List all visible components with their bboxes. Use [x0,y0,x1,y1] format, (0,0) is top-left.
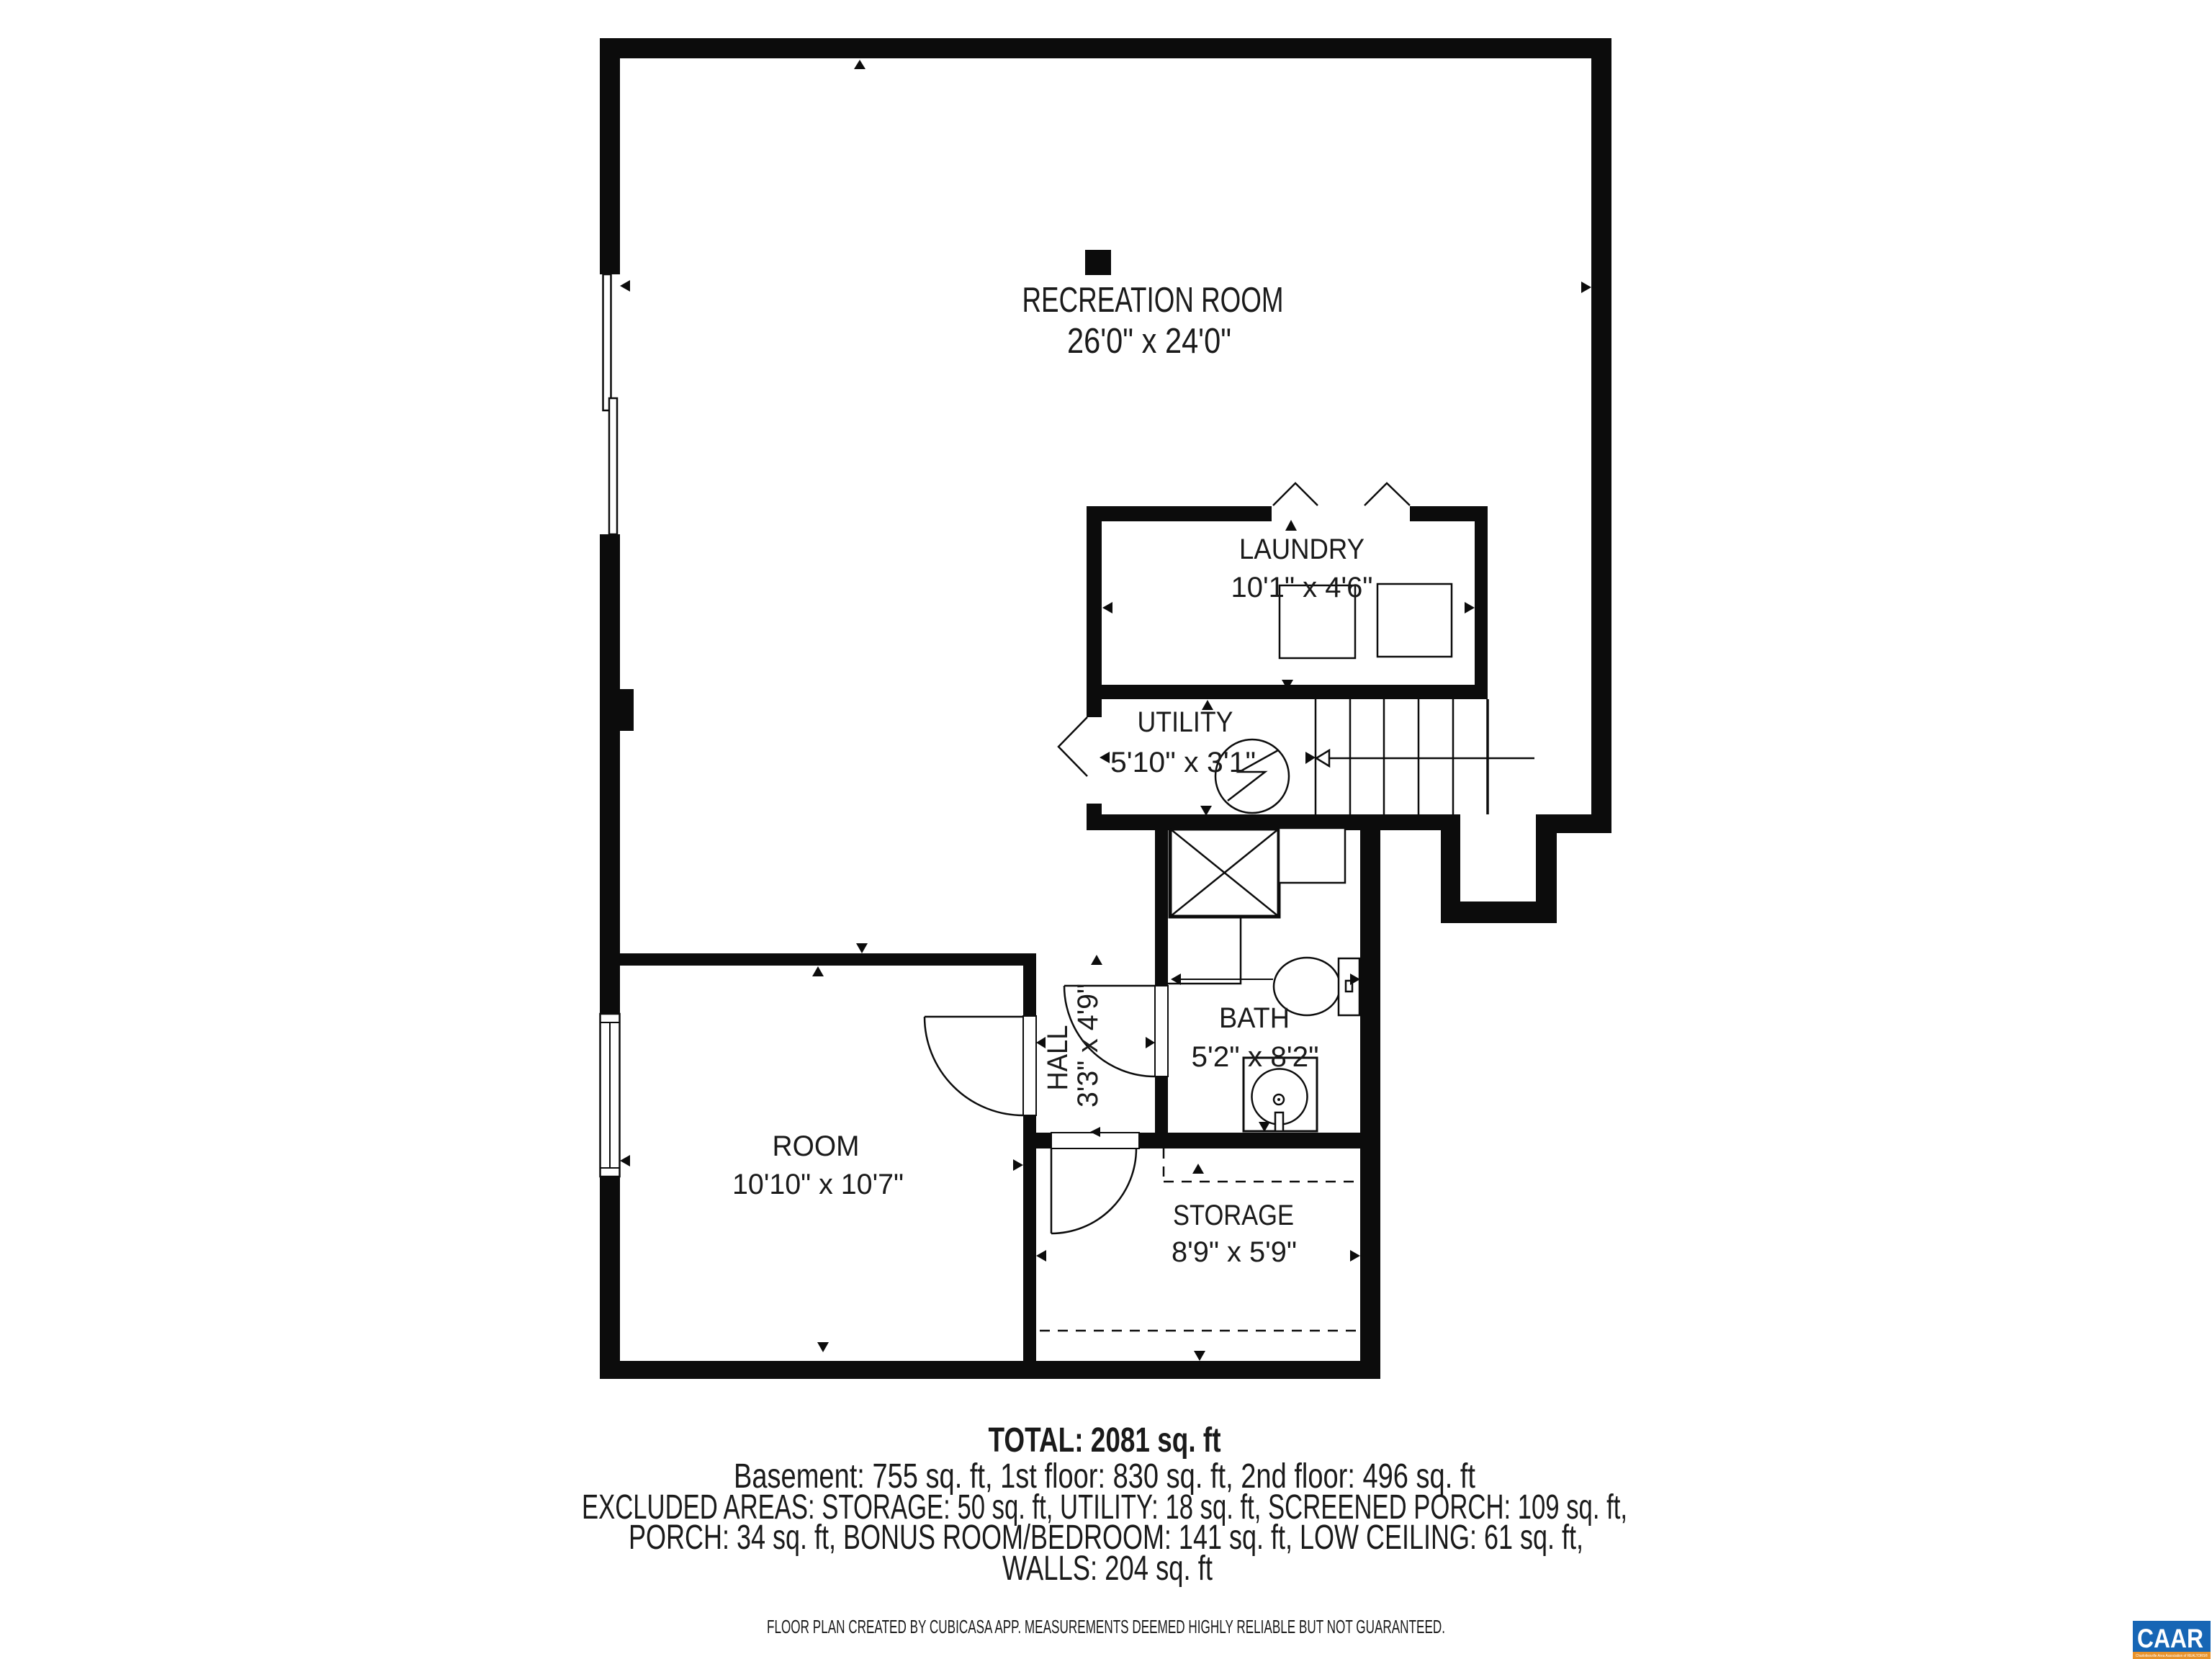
svg-text:HALL: HALL [1042,1025,1074,1091]
svg-text:8'9" x 5'9": 8'9" x 5'9" [1172,1236,1297,1268]
svg-text:WALLS: 204 sq. ft: WALLS: 204 sq. ft [1002,1550,1213,1588]
svg-text:LAUNDRY: LAUNDRY [1239,534,1364,565]
svg-text:Charlottesville Area Associati: Charlottesville Area Association of REAL… [2136,1653,2208,1658]
svg-text:BATH: BATH [1219,1002,1290,1034]
svg-text:UTILITY: UTILITY [1138,706,1233,738]
svg-text:26'0" x 24'0": 26'0" x 24'0" [1067,322,1231,361]
svg-text:5'10" x 3'1": 5'10" x 3'1" [1110,747,1256,778]
svg-text:5'2" x 8'2": 5'2" x 8'2" [1192,1041,1319,1073]
svg-text:STORAGE: STORAGE [1173,1200,1294,1231]
svg-text:RECREATION ROOM: RECREATION ROOM [1022,281,1284,320]
svg-text:FLOOR PLAN CREATED BY CUBICASA: FLOOR PLAN CREATED BY CUBICASA APP. MEAS… [767,1616,1445,1637]
svg-text:10'1" x 4'6": 10'1" x 4'6" [1231,572,1373,603]
svg-text:TOTAL: 2081 sq. ft: TOTAL: 2081 sq. ft [989,1421,1221,1460]
svg-text:CAAR: CAAR [2137,1624,2203,1653]
svg-text:10'10" x 10'7": 10'10" x 10'7" [732,1169,904,1200]
svg-text:ROOM: ROOM [773,1130,860,1162]
svg-text:3'3" x 4'9": 3'3" x 4'9" [1072,984,1104,1107]
